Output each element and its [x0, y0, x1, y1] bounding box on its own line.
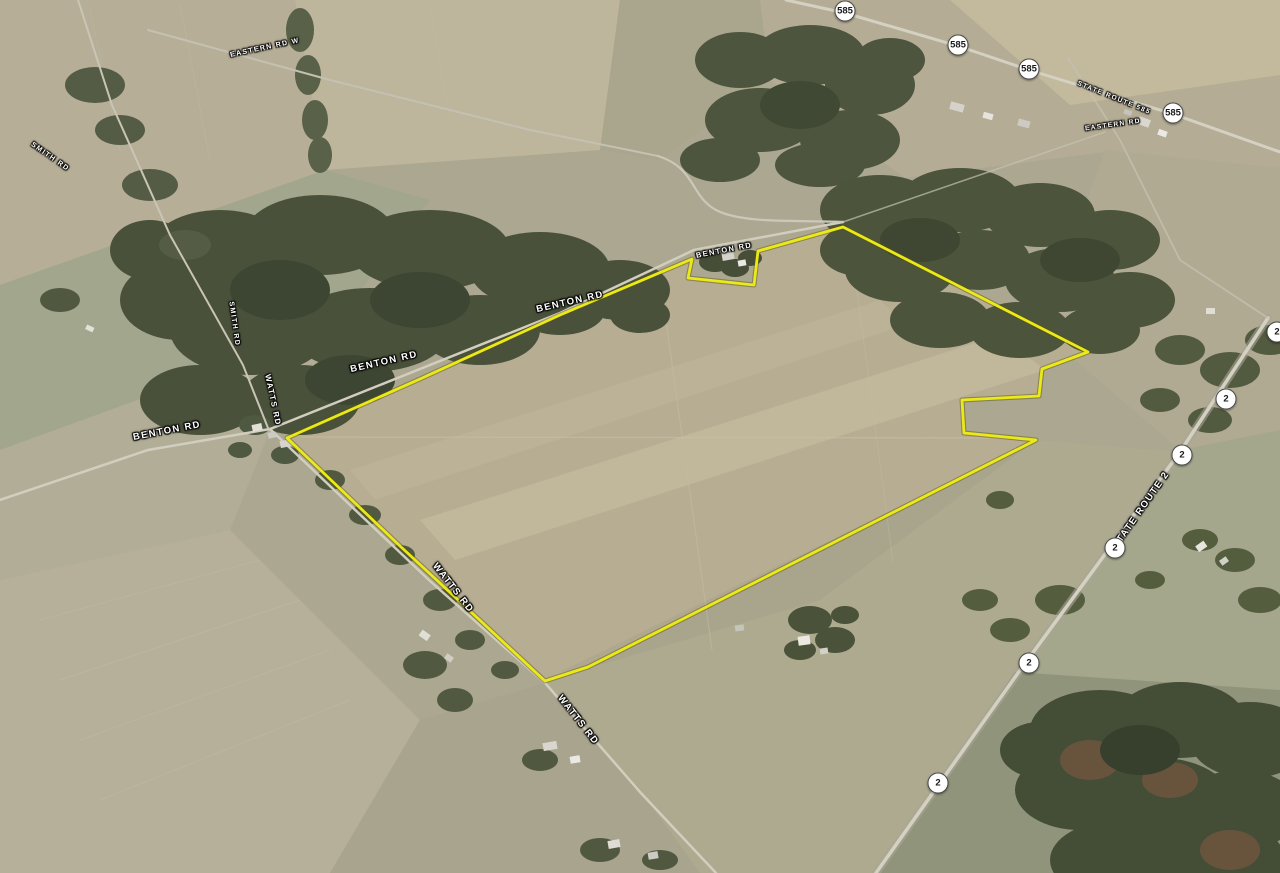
route-shield-number: 585 [1165, 108, 1181, 118]
route-shield-2: 2 [1172, 445, 1193, 466]
route-shield-number: 2 [1179, 450, 1184, 460]
map-canvas[interactable]: EASTERN RD W SMITH RD SMITH RD BENTON RD… [0, 0, 1280, 873]
route-shield-2: 2 [1216, 389, 1237, 410]
route-shield-585: 585 [1019, 59, 1040, 80]
route-shield-number: 2 [1112, 543, 1117, 553]
route-shield-number: 585 [837, 6, 853, 16]
route-shield-585: 585 [1163, 103, 1184, 124]
route-shield-number: 585 [1021, 64, 1037, 74]
route-shield-2: 2 [1105, 538, 1126, 559]
route-shield-2: 2 [1267, 322, 1280, 343]
route-shield-2: 2 [928, 773, 949, 794]
route-shield-585: 585 [835, 1, 856, 22]
route-shield-number: 2 [935, 778, 940, 788]
route-shield-number: 2 [1223, 394, 1228, 404]
route-shield-number: 585 [950, 40, 966, 50]
route-shield-number: 2 [1026, 658, 1031, 668]
route-shield-585: 585 [948, 35, 969, 56]
route-shield-2: 2 [1019, 653, 1040, 674]
route-shield-number: 2 [1274, 327, 1279, 337]
